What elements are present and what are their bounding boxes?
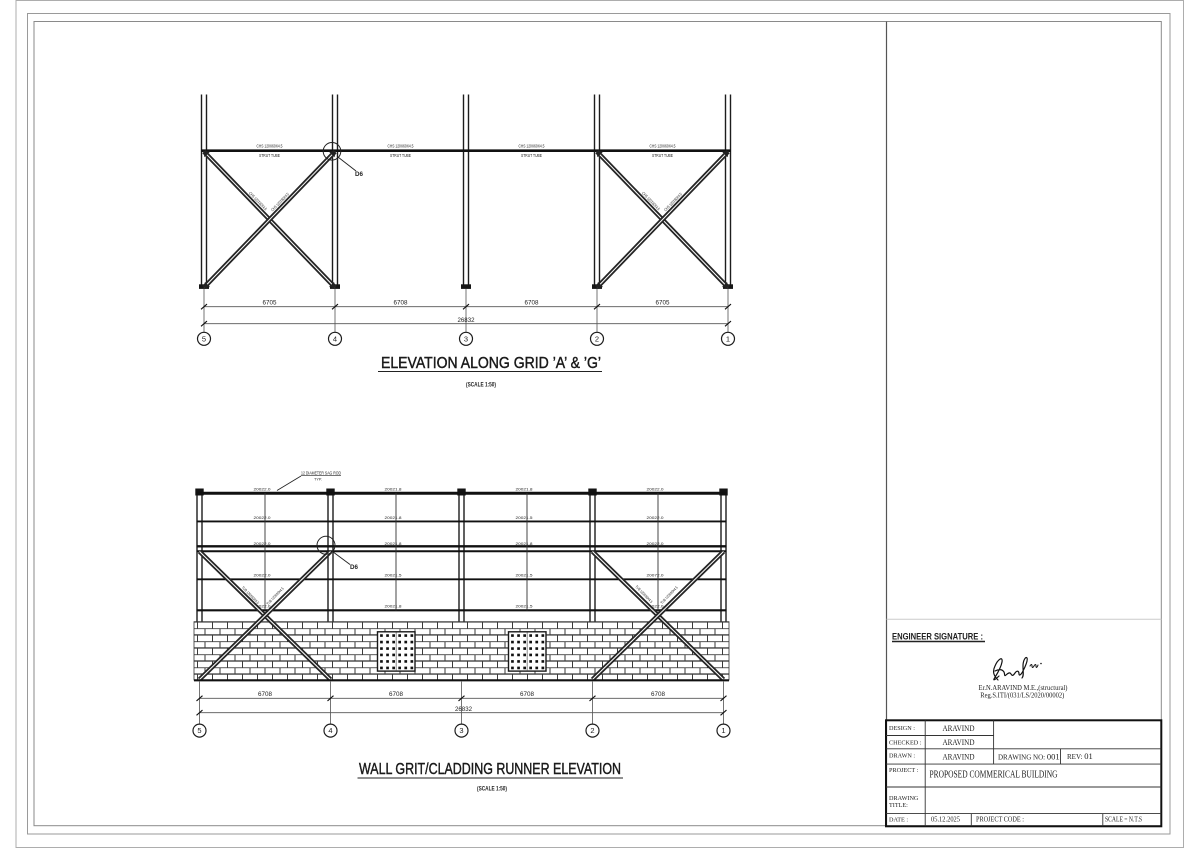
svg-text:DRAWING NO: 001: DRAWING NO: 001 bbox=[998, 752, 1060, 762]
svg-text:6705: 6705 bbox=[263, 299, 277, 306]
svg-text:(SCALE 1:50): (SCALE 1:50) bbox=[466, 383, 496, 389]
svg-text:26832: 26832 bbox=[458, 318, 476, 324]
svg-text:20022.0: 20022.0 bbox=[647, 487, 665, 492]
svg-text:3: 3 bbox=[464, 334, 468, 343]
svg-text:4: 4 bbox=[333, 334, 337, 343]
svg-text:1: 1 bbox=[726, 334, 730, 343]
svg-text:D6: D6 bbox=[350, 564, 358, 571]
svg-text:PROJECT CODE :: PROJECT CODE : bbox=[976, 815, 1024, 823]
svg-text:20021.8: 20021.8 bbox=[385, 541, 403, 546]
svg-text:SCALE = N.T.S: SCALE = N.T.S bbox=[1105, 815, 1142, 823]
svg-text:6708: 6708 bbox=[389, 691, 403, 698]
svg-text:STRUT TUBE: STRUT TUBE bbox=[259, 153, 280, 158]
svg-text:20022.0: 20022.0 bbox=[254, 487, 272, 492]
svg-text:DESIGN :: DESIGN : bbox=[889, 725, 915, 732]
svg-text:26832: 26832 bbox=[455, 707, 473, 713]
svg-text:CHS 120X60X4.5: CHS 120X60X4.5 bbox=[519, 143, 546, 148]
svg-text:CHS 120X60X4.5: CHS 120X60X4.5 bbox=[650, 143, 677, 148]
svg-text:ARAVIND: ARAVIND bbox=[943, 723, 975, 733]
svg-text:DATE :: DATE : bbox=[889, 816, 908, 823]
svg-text:CHS 120X60X4.5: CHS 120X60X4.5 bbox=[388, 143, 415, 148]
svg-text:REV: 01: REV: 01 bbox=[1067, 751, 1093, 761]
svg-text:1: 1 bbox=[721, 726, 725, 735]
svg-text:5: 5 bbox=[202, 334, 206, 343]
svg-text:20022.0: 20022.0 bbox=[254, 573, 272, 578]
svg-text:20021.5: 20021.5 bbox=[516, 573, 534, 578]
svg-text:20022.0: 20022.0 bbox=[254, 541, 272, 546]
svg-text:PROJECT :: PROJECT : bbox=[889, 767, 919, 774]
svg-text:20021.8: 20021.8 bbox=[516, 487, 534, 492]
svg-text:3: 3 bbox=[459, 726, 463, 735]
svg-text:12 DIAMETER SAG ROD: 12 DIAMETER SAG ROD bbox=[301, 470, 341, 475]
svg-text:6708: 6708 bbox=[520, 691, 534, 698]
svg-text:6708: 6708 bbox=[394, 299, 408, 306]
svg-text:CHS 120X60X4.5: CHS 120X60X4.5 bbox=[257, 143, 284, 148]
svg-text:2: 2 bbox=[590, 726, 594, 735]
svg-text:CHECKED :: CHECKED : bbox=[889, 739, 922, 746]
svg-text:6708: 6708 bbox=[258, 691, 272, 698]
svg-text:5: 5 bbox=[197, 726, 201, 735]
svg-text:STRUT TUBE: STRUT TUBE bbox=[390, 153, 411, 158]
svg-text:Reg.S.ITI/(031/LS/2020/00002): Reg.S.ITI/(031/LS/2020/00002) bbox=[980, 690, 1064, 699]
svg-text:ARAVIND: ARAVIND bbox=[943, 737, 975, 747]
svg-text:(SCALE 1:50): (SCALE 1:50) bbox=[477, 787, 507, 793]
svg-text:20021.5: 20021.5 bbox=[516, 604, 534, 609]
svg-text:6708: 6708 bbox=[651, 691, 665, 698]
svg-text:20021.5: 20021.5 bbox=[516, 515, 534, 520]
svg-text:4: 4 bbox=[328, 726, 332, 735]
svg-text:PROPOSED COMMERICAL BUILDING: PROPOSED COMMERICAL BUILDING bbox=[930, 769, 1058, 780]
svg-text:05.12.2025: 05.12.2025 bbox=[931, 814, 960, 823]
svg-text:STRUT TUBE: STRUT TUBE bbox=[521, 153, 542, 158]
svg-text:20022.0: 20022.0 bbox=[647, 541, 665, 546]
svg-text:WALL GRIT/CLADDING RUNNER ELEV: WALL GRIT/CLADDING RUNNER ELEVATION bbox=[359, 761, 621, 778]
svg-text:20072.0: 20072.0 bbox=[647, 573, 665, 578]
svg-text:6708: 6708 bbox=[525, 299, 539, 306]
svg-text:TITLE:: TITLE: bbox=[889, 802, 908, 809]
svg-text:D6: D6 bbox=[355, 171, 363, 178]
svg-text:20021.5: 20021.5 bbox=[385, 573, 403, 578]
svg-text:20021.8: 20021.8 bbox=[385, 604, 403, 609]
svg-text:20022.0: 20022.0 bbox=[647, 515, 665, 520]
svg-text:TYP.: TYP. bbox=[314, 476, 322, 481]
svg-text:6705: 6705 bbox=[656, 299, 670, 306]
svg-text:ARAVIND: ARAVIND bbox=[943, 752, 975, 762]
svg-text:ELEVATION ALONG GRID ’A’ & ’G’: ELEVATION ALONG GRID ’A’ & ’G’ bbox=[381, 355, 601, 372]
svg-text:20021.8: 20021.8 bbox=[385, 487, 403, 492]
svg-text:20021.8: 20021.8 bbox=[516, 541, 534, 546]
svg-text:DRAWN :: DRAWN : bbox=[889, 753, 915, 760]
svg-text:20021.8: 20021.8 bbox=[385, 515, 403, 520]
svg-text:2: 2 bbox=[595, 334, 599, 343]
svg-text:20022.0: 20022.0 bbox=[254, 515, 272, 520]
svg-text:STRUT TUBE: STRUT TUBE bbox=[652, 153, 673, 158]
